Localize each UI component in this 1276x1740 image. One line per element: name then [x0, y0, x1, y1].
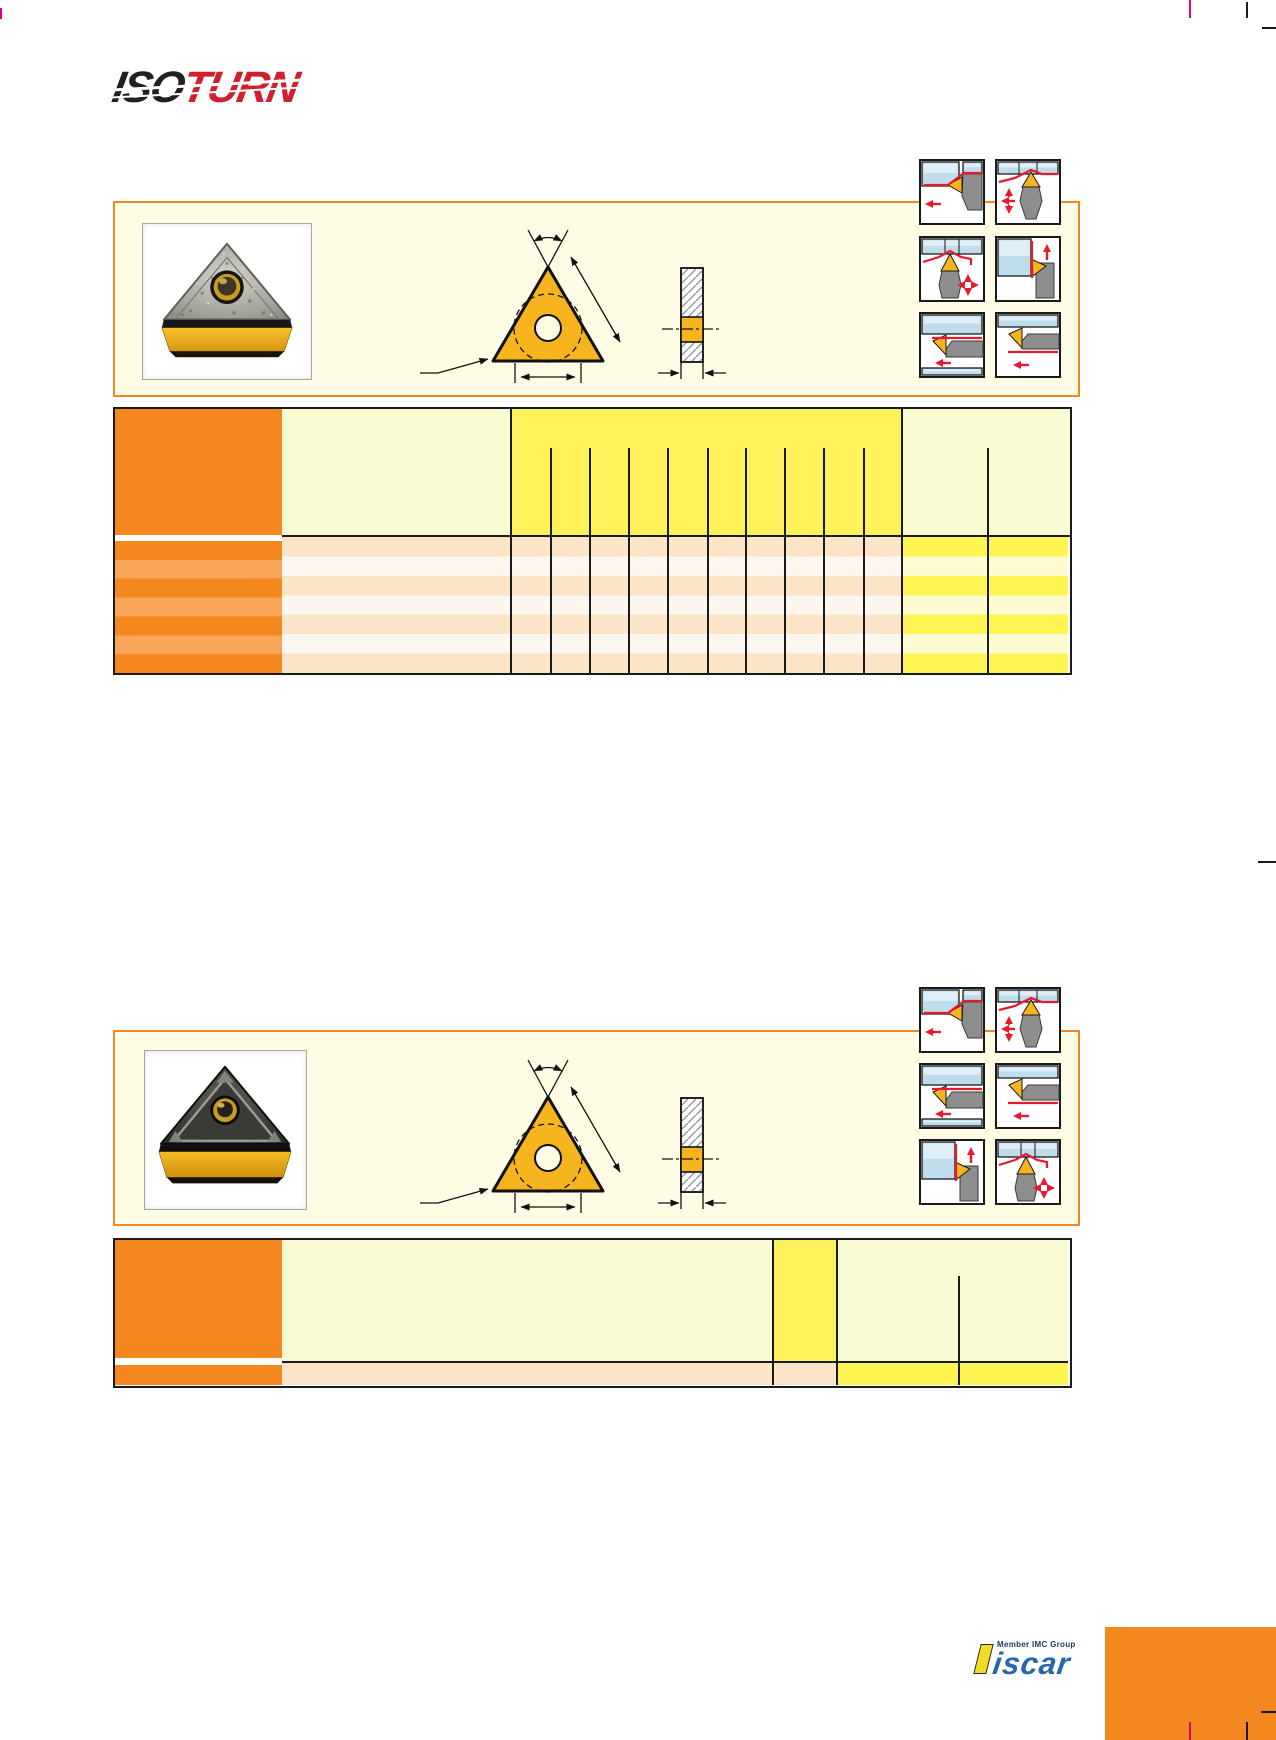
table1-column-border	[510, 409, 512, 673]
section2-insert-photo	[145, 1051, 306, 1214]
isoturn-logo: ISOTURN	[113, 66, 343, 110]
external-turning-left-icon	[919, 987, 985, 1053]
table2-header-name-cell	[282, 1240, 1068, 1361]
table1-header-designation-cell	[113, 409, 282, 535]
external-turning-left-icon	[919, 159, 985, 225]
fold-mark-right	[1258, 861, 1276, 863]
table1-subcolumn-line	[628, 448, 630, 673]
profile-turning-multi-icon-box	[995, 159, 1061, 225]
registration-mark-top-magenta	[1189, 0, 1191, 18]
apex-angle-arrow	[534, 238, 562, 242]
catalog-page: ISOTURN	[0, 0, 1276, 1740]
back-boring-left-icon	[995, 312, 1061, 378]
section1-insert-photo-frame	[142, 223, 312, 380]
insert-drawing-svg	[400, 1035, 740, 1225]
cross-section-hatched	[681, 1098, 703, 1192]
profile-turning-multi-icon	[995, 159, 1061, 225]
insert-photo-svg	[143, 224, 311, 379]
registration-mark-left-magenta	[0, 8, 2, 19]
peak-profile-icon	[919, 236, 985, 302]
table1-subcolumn-line	[823, 448, 825, 673]
boring-left-icon	[919, 1063, 985, 1129]
insert-center-hole	[535, 315, 561, 341]
section1-spec-table	[113, 407, 1072, 675]
table1-data-rows	[282, 537, 901, 673]
corner-radius-leader	[438, 1189, 488, 1203]
registration-mark-bottom-right-dash	[1261, 1711, 1276, 1713]
section1-insert-photo	[143, 224, 311, 384]
profile-turning-multi-icon	[995, 987, 1061, 1053]
boring-left-icon	[919, 312, 985, 378]
insert-center-hole	[535, 1145, 561, 1171]
back-boring-left-icon	[995, 1063, 1061, 1129]
table1-subcolumn-line	[550, 448, 552, 673]
apex-angle-arrow	[534, 1068, 562, 1072]
insert-drawing-svg	[400, 205, 740, 395]
table1-subcolumn-line	[707, 448, 709, 673]
table1-designation-rows	[113, 541, 282, 673]
peak-profile-icon	[995, 1139, 1061, 1205]
peak-profile-icon-box	[995, 1139, 1061, 1205]
section2-dimension-drawing	[400, 1035, 740, 1225]
corner-radius-leader	[438, 359, 488, 373]
table1-grade-rows	[901, 537, 1068, 673]
section1-dimension-drawing	[400, 205, 740, 395]
iscar-brand-text: iscar	[990, 1646, 1072, 1682]
registration-mark-top-right-dash	[1262, 27, 1276, 29]
registration-mark-bottom-black	[1246, 1722, 1248, 1740]
registration-mark-top-black	[1246, 2, 1248, 18]
table2-data-row-main	[282, 1363, 836, 1385]
table1-header-grade-cell	[901, 409, 1070, 535]
table2-data-row-grade	[836, 1363, 1068, 1385]
iscar-yellow-mark	[973, 1644, 993, 1674]
table2-header-highlight-cell	[772, 1240, 836, 1361]
peak-profile-icon-box	[919, 236, 985, 302]
table2-line-a	[772, 1240, 774, 1385]
table1-subcolumn-line	[667, 448, 669, 673]
external-turning-left-icon-box	[919, 159, 985, 225]
table1-column-border	[901, 409, 903, 673]
section2-spec-table	[113, 1238, 1072, 1388]
facing-up-icon-box	[995, 236, 1061, 302]
back-boring-left-icon-box	[995, 312, 1061, 378]
table2-data-row-designation	[113, 1365, 282, 1385]
section2-insert-photo-frame	[144, 1050, 307, 1210]
table1-subcolumn-line	[745, 448, 747, 673]
boring-left-icon-box	[919, 1063, 985, 1129]
table1-header-name-cell	[282, 409, 510, 535]
table2-line-b	[836, 1240, 838, 1385]
table2-header-gap	[113, 1358, 282, 1365]
insert-photo-svg	[145, 1051, 306, 1209]
back-boring-left-icon-box	[995, 1063, 1061, 1129]
table1-subcolumn-line	[863, 448, 865, 673]
external-turning-left-icon-box	[919, 987, 985, 1053]
facing-up-icon-box	[919, 1139, 985, 1205]
iscar-member-logo: Member IMC Group iscar	[975, 1640, 1085, 1692]
table2-line-c	[958, 1276, 960, 1385]
profile-turning-multi-icon-box	[995, 987, 1061, 1053]
table1-subcolumn-line	[987, 448, 989, 673]
table1-subcolumn-line	[589, 448, 591, 673]
facing-up-icon	[995, 236, 1061, 302]
cross-section-hatched	[681, 268, 703, 362]
registration-mark-bottom-magenta	[1189, 1722, 1191, 1740]
boring-left-icon-box	[919, 312, 985, 378]
facing-up-icon	[919, 1139, 985, 1205]
table1-header-dimensions-cell	[510, 409, 901, 535]
table2-header-designation-cell	[113, 1240, 282, 1358]
table1-subcolumn-line	[784, 448, 786, 673]
